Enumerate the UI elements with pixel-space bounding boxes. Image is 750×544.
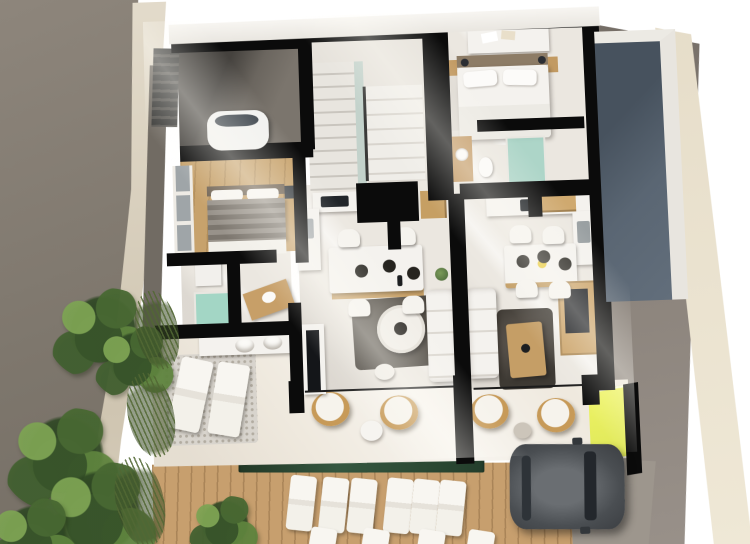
scene: [0, 0, 750, 544]
tree: [186, 496, 264, 544]
vegetation-layer: [0, 0, 750, 544]
